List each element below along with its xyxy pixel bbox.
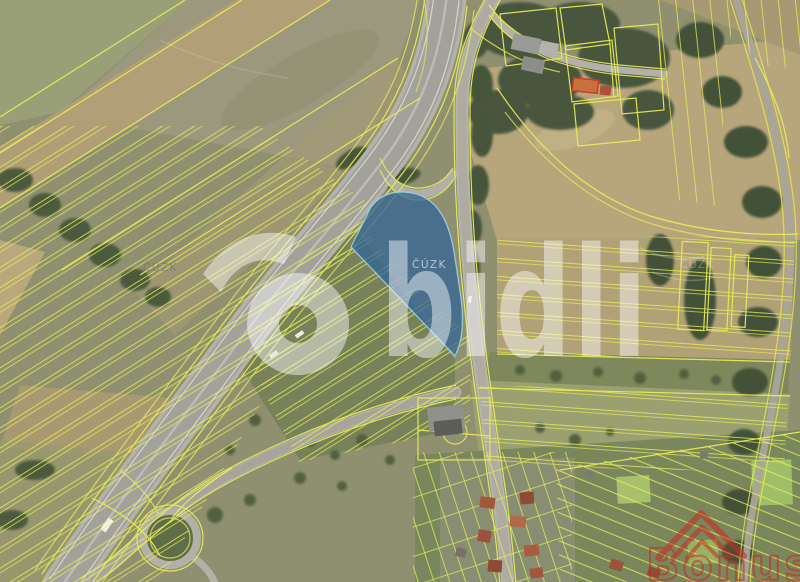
map-canvas: ČÚZK ČÚZK ČÚZK bidli Bonus xyxy=(0,0,800,582)
agency-watermark-text: Bonus xyxy=(646,540,800,582)
highlighted-building xyxy=(572,78,598,94)
brand-watermark-text: bidli xyxy=(380,215,649,392)
cadastral-satellite-map: ČÚZK ČÚZK ČÚZK bidli Bonus xyxy=(0,0,800,582)
cuzk-watermark-left: ČÚZK xyxy=(143,261,178,274)
brand-watermark: bidli xyxy=(203,215,649,392)
cuzk-watermark-right: ČÚZK xyxy=(680,258,715,271)
